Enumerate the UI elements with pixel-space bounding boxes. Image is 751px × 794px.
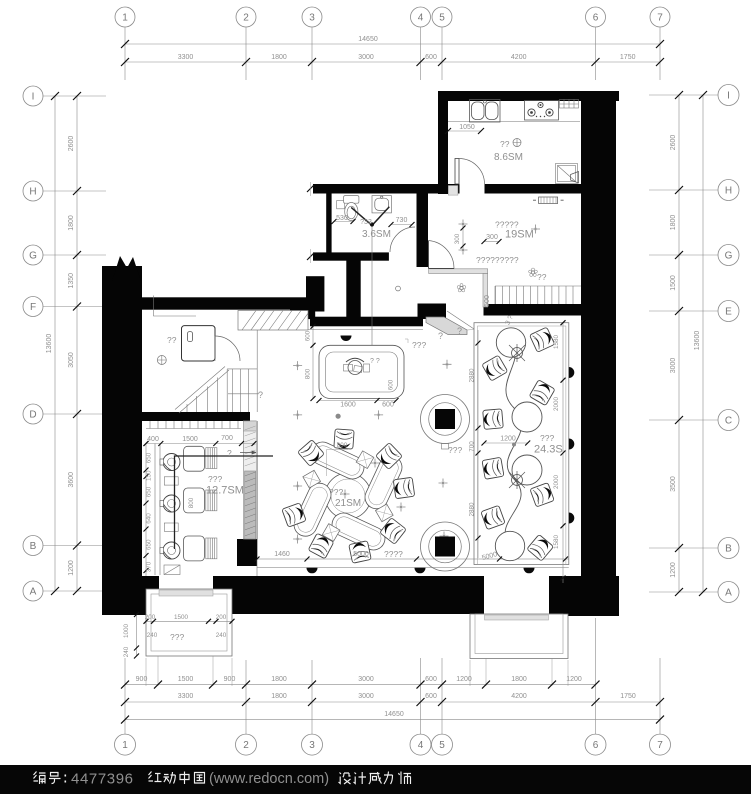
svg-text:1: 1 <box>122 740 128 751</box>
svg-text:???: ??? <box>170 632 184 642</box>
svg-text:4200: 4200 <box>511 54 527 61</box>
svg-text:1050: 1050 <box>459 124 475 131</box>
svg-text:3.6SM: 3.6SM <box>362 229 391 240</box>
svg-text:A: A <box>30 587 37 598</box>
svg-text:(www.redocn.com): (www.redocn.com) <box>209 771 329 787</box>
svg-text:300: 300 <box>486 234 498 241</box>
svg-text:13600: 13600 <box>694 331 701 351</box>
svg-text:I: I <box>727 91 730 102</box>
svg-text:1750: 1750 <box>620 693 636 700</box>
svg-text:A: A <box>725 588 732 599</box>
svg-text:150: 150 <box>146 470 153 481</box>
svg-text:1800: 1800 <box>68 215 75 231</box>
svg-text:3300: 3300 <box>178 693 194 700</box>
svg-text:1800: 1800 <box>271 676 287 683</box>
svg-text:600: 600 <box>425 676 437 683</box>
svg-text:600: 600 <box>388 379 395 390</box>
svg-text:3500: 3500 <box>670 476 677 492</box>
svg-text:3000: 3000 <box>358 693 374 700</box>
svg-text:500: 500 <box>484 295 491 307</box>
svg-text:600: 600 <box>425 54 437 61</box>
svg-text:1200: 1200 <box>500 436 516 443</box>
svg-text:C: C <box>725 416 732 427</box>
svg-text:???: ??? <box>448 445 462 455</box>
svg-text:240: 240 <box>123 646 130 657</box>
svg-text:3000: 3000 <box>358 54 374 61</box>
svg-text:1800: 1800 <box>271 693 287 700</box>
svg-text:2880: 2880 <box>469 368 476 383</box>
svg-text:?????????: ????????? <box>476 255 519 265</box>
svg-text:600: 600 <box>305 330 312 341</box>
svg-text:3000: 3000 <box>670 358 677 374</box>
svg-text:?33: ?33 <box>360 219 372 226</box>
svg-text:B: B <box>725 544 732 555</box>
svg-text:1460: 1460 <box>274 551 290 558</box>
svg-text:? ?: ? ? <box>370 358 380 365</box>
svg-text:???: ??? <box>208 474 222 484</box>
svg-text:E: E <box>725 307 732 318</box>
svg-text:370: 370 <box>146 561 153 572</box>
svg-text:900: 900 <box>136 676 148 683</box>
svg-text:1750: 1750 <box>620 54 636 61</box>
svg-text:2000: 2000 <box>553 397 560 412</box>
svg-text:8.6SM: 8.6SM <box>494 152 523 163</box>
svg-text:1580: 1580 <box>553 335 560 350</box>
svg-text:1600: 1600 <box>340 402 356 409</box>
svg-text:?: ? <box>227 448 232 458</box>
svg-text:21SM: 21SM <box>335 498 361 509</box>
svg-text:600: 600 <box>425 693 437 700</box>
svg-text:??: ?? <box>500 139 510 149</box>
svg-text:1350: 1350 <box>68 273 75 289</box>
svg-text:3300: 3300 <box>178 54 194 61</box>
svg-text:3050: 3050 <box>68 352 75 368</box>
svg-text:H: H <box>725 186 732 197</box>
svg-text:1200: 1200 <box>68 560 75 576</box>
svg-text:1800: 1800 <box>511 676 527 683</box>
svg-text:3000: 3000 <box>358 676 374 683</box>
svg-text:24.3S: 24.3S <box>534 444 563 456</box>
svg-text:240: 240 <box>216 632 227 639</box>
svg-text:530: 530 <box>336 215 348 222</box>
svg-text:I: I <box>32 92 35 103</box>
svg-text:1200: 1200 <box>670 562 677 578</box>
svg-text:12.7SM: 12.7SM <box>206 485 244 497</box>
svg-text:G: G <box>725 251 733 262</box>
svg-text:700: 700 <box>221 435 233 442</box>
svg-text:1800: 1800 <box>271 54 287 61</box>
svg-text:D: D <box>29 410 36 421</box>
svg-text:1200: 1200 <box>566 676 582 683</box>
svg-text:900: 900 <box>224 676 236 683</box>
svg-text:13600: 13600 <box>46 334 53 354</box>
svg-text:?: ? <box>258 390 263 400</box>
svg-text:3600: 3600 <box>68 472 75 488</box>
svg-text:300: 300 <box>454 233 461 244</box>
svg-text:1580: 1580 <box>553 535 560 550</box>
svg-text:2600: 2600 <box>670 135 677 151</box>
svg-text:7: 7 <box>657 740 663 751</box>
svg-text:4: 4 <box>418 13 424 24</box>
svg-text:1800: 1800 <box>670 215 677 231</box>
svg-text:730: 730 <box>396 217 408 224</box>
svg-text:????: ???? <box>384 549 403 559</box>
svg-text:14650: 14650 <box>384 711 404 718</box>
svg-text:600: 600 <box>382 402 394 409</box>
svg-text:2880: 2880 <box>469 502 476 517</box>
svg-text:1500: 1500 <box>670 275 677 291</box>
svg-text:1200: 1200 <box>456 676 472 683</box>
svg-text:1: 1 <box>122 13 128 24</box>
svg-text:650: 650 <box>146 539 153 550</box>
svg-text:???: ??? <box>329 487 343 497</box>
svg-text:400: 400 <box>147 436 159 443</box>
svg-text:???: ??? <box>540 433 554 443</box>
svg-text:5: 5 <box>439 13 445 24</box>
svg-text:640: 640 <box>146 513 153 524</box>
svg-text:1500: 1500 <box>182 436 198 443</box>
svg-text:240: 240 <box>147 632 158 639</box>
svg-text:2000: 2000 <box>553 475 560 490</box>
svg-text:5000: 5000 <box>353 551 369 558</box>
svg-text:F: F <box>30 302 36 313</box>
svg-text:800: 800 <box>305 368 312 379</box>
svg-text:7: 7 <box>657 13 663 24</box>
svg-text:2: 2 <box>243 740 249 751</box>
svg-text:3: 3 <box>309 740 315 751</box>
svg-text:200: 200 <box>216 614 227 621</box>
svg-text:??: ?? <box>167 335 177 345</box>
svg-text:6: 6 <box>593 740 599 751</box>
svg-text:?: ? <box>438 331 443 341</box>
svg-text:B: B <box>30 541 37 552</box>
svg-text:800: 800 <box>188 497 195 508</box>
svg-text:2600: 2600 <box>68 136 75 152</box>
svg-text:2: 2 <box>243 13 249 24</box>
svg-text:H: H <box>29 187 36 198</box>
svg-text:700: 700 <box>469 441 476 452</box>
svg-text:3: 3 <box>309 13 315 24</box>
svg-text:4: 4 <box>418 740 424 751</box>
svg-text:4477396: 4477396 <box>71 771 134 788</box>
svg-text:?: ? <box>457 326 462 336</box>
svg-text:200: 200 <box>145 614 156 621</box>
svg-text:19SM: 19SM <box>505 229 534 241</box>
svg-text:800: 800 <box>337 442 348 449</box>
svg-text:???: ??? <box>412 340 426 350</box>
svg-text:1500: 1500 <box>174 614 189 621</box>
svg-text:4200: 4200 <box>511 693 527 700</box>
svg-text:650: 650 <box>146 452 153 463</box>
svg-text:650: 650 <box>146 486 153 497</box>
svg-text:1000: 1000 <box>123 624 130 639</box>
svg-text:1500: 1500 <box>178 676 194 683</box>
svg-text:14650: 14650 <box>358 36 378 43</box>
svg-text:6: 6 <box>593 13 599 24</box>
svg-text:??: ?? <box>537 272 547 282</box>
svg-text:G: G <box>29 251 37 262</box>
svg-text:5: 5 <box>439 740 445 751</box>
